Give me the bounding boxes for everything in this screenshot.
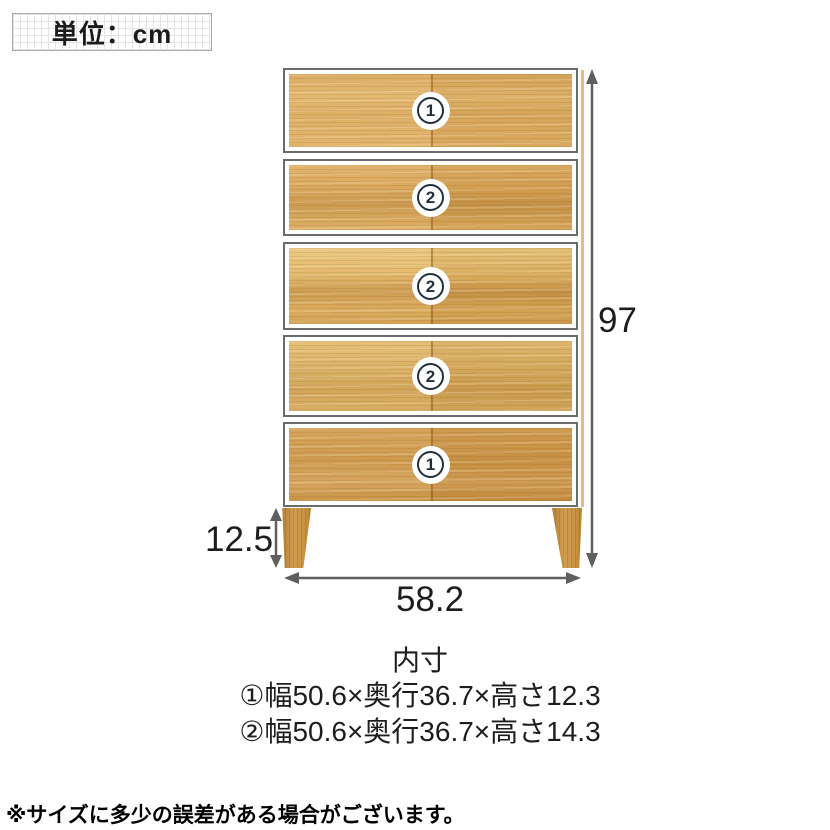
size-disclaimer: ※サイズに多少の誤差がある場合がございます。 [6, 799, 465, 829]
chest-leg-left [281, 508, 312, 568]
badge-ring: 2 [417, 273, 444, 300]
unit-box: 単位：cm [12, 13, 212, 51]
total-height-value: 97 [598, 303, 637, 338]
drawer-number: 2 [426, 189, 435, 206]
inner-dimensions-line-2: ②幅50.6×奥行36.7×高さ14.3 [140, 714, 700, 750]
drawer-row-5: 1 [283, 422, 578, 507]
unit-label: 単位：cm [52, 14, 173, 51]
drawer-row-4: 2 [283, 335, 578, 417]
badge-ring: 1 [417, 97, 444, 124]
inner-dimensions-block: 内寸 ①幅50.6×奥行36.7×高さ12.3 ②幅50.6×奥行36.7×高さ… [140, 644, 700, 750]
inner-dimensions-line-1: ①幅50.6×奥行36.7×高さ12.3 [140, 678, 700, 714]
drawer-number-badge: 2 [412, 179, 450, 217]
chest-side-edge [581, 70, 584, 507]
badge-ring: 2 [417, 363, 444, 390]
drawer-number: 1 [426, 102, 435, 119]
drawer-number-badge: 2 [412, 357, 450, 395]
height-dimension-line [586, 69, 598, 568]
drawer-number: 1 [426, 456, 435, 473]
inner-dimensions-title: 内寸 [140, 644, 700, 678]
width-value: 58.2 [340, 582, 520, 617]
leg-height-value: 12.5 [205, 522, 273, 557]
drawer-row-1: 1 [283, 68, 578, 153]
badge-ring: 2 [417, 184, 444, 211]
drawer-row-2: 2 [283, 159, 578, 236]
drawer-number: 2 [426, 368, 435, 385]
drawer-row-3: 2 [283, 242, 578, 330]
badge-ring: 1 [417, 451, 444, 478]
drawer-number-badge: 2 [412, 267, 450, 305]
drawer-number: 2 [426, 278, 435, 295]
drawer-number-badge: 1 [412, 92, 450, 130]
chest-leg-right [551, 508, 583, 568]
drawer-number-badge: 1 [412, 446, 450, 484]
size-diagram: 単位：cm 1 2 2 2 [0, 0, 830, 830]
